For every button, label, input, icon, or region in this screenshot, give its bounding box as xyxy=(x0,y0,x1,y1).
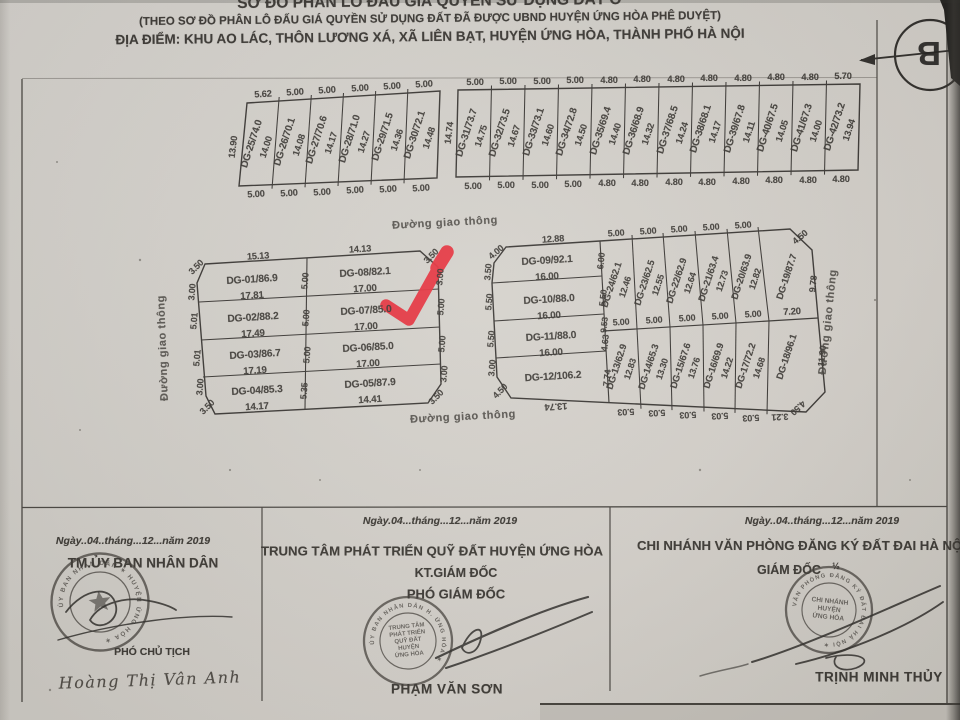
dim-label: 4.80 xyxy=(667,74,684,84)
dim-label: 5.00 xyxy=(313,186,331,197)
dim-label: 4.80 xyxy=(600,75,617,85)
dim-label: 5.00 xyxy=(301,346,312,364)
signature-role-1: PHÓ CHỦ TỊCH xyxy=(114,646,190,658)
dim-label: 6.00 xyxy=(595,252,607,270)
dim-label: 12.88 xyxy=(542,233,565,245)
signature-date-3: Ngày..04..tháng...12...năm 2019 xyxy=(745,515,899,527)
svg-text:CHI NHÁNH: CHI NHÁNH xyxy=(811,594,849,607)
signature-name-2: PHẠM VĂN SƠN xyxy=(391,682,503,697)
dim-label: 9.53 xyxy=(598,317,610,334)
dim-label: 5.00 xyxy=(567,75,584,85)
dim-label: 5.00 xyxy=(711,310,728,321)
photo-left-edge xyxy=(0,0,10,720)
dim-label: 5.00 xyxy=(412,182,430,193)
dim-label: 4.63 xyxy=(599,334,611,352)
dim-label: 14.41 xyxy=(358,394,382,406)
dim-label: 5.03 xyxy=(617,407,634,418)
dim-label: 3.00 xyxy=(194,378,205,396)
compass-north-label: B xyxy=(917,34,941,72)
signature-role-mark-3: ½ xyxy=(832,561,840,571)
dim-label: 7.74 xyxy=(601,369,613,387)
photo-noise-speckles xyxy=(49,161,911,691)
dim-label: 5.00 xyxy=(299,272,310,290)
dim-label: 17.19 xyxy=(243,365,267,377)
dim-label: 5.00 xyxy=(435,298,446,316)
photo-top-edge xyxy=(0,0,960,3)
dim-label: 4.80 xyxy=(801,72,818,82)
signature-date-1: Ngày..04..tháng...12...năm 2019 xyxy=(56,535,210,547)
dim-label: 3.50 xyxy=(482,263,493,281)
dim-label: 5.03 xyxy=(679,409,696,420)
dim-label: 5.50 xyxy=(483,293,494,311)
dim-label: 5.00 xyxy=(734,219,751,230)
signature-role1-2: KT.GIÁM ĐỐC xyxy=(415,566,498,580)
signature-org-2: TRUNG TÂM PHÁT TRIỂN QUỸ ĐẤT HUYỆN ỨNG H… xyxy=(261,544,603,559)
dim-label: 4.80 xyxy=(732,176,749,186)
dim-label: 5.62 xyxy=(254,88,272,99)
dim-label: 17.49 xyxy=(241,328,265,340)
dim-label: 5.00 xyxy=(607,227,624,238)
dim-label: 5.03 xyxy=(742,412,759,423)
adjacent-sheet-edge xyxy=(540,703,960,720)
dim-label: 4.80 xyxy=(665,177,682,187)
dim-label: 4.80 xyxy=(634,74,651,84)
dim-label: 3.00 xyxy=(486,359,497,377)
dim-label: 3.00 xyxy=(434,268,445,286)
dim-label: 5.00 xyxy=(464,181,481,191)
dim-label: 16.00 xyxy=(539,347,563,359)
dim-label: 3.00 xyxy=(438,365,449,383)
dim-label: 5.03 xyxy=(648,408,665,419)
dim-label: 5.01 xyxy=(191,349,202,367)
signature-role2-2: PHÓ GIÁM ĐỐC xyxy=(407,587,505,602)
dim-label: 5.00 xyxy=(247,189,265,200)
dim-label: 5.00 xyxy=(670,223,687,234)
signature-role-3: GIÁM ĐỐC xyxy=(757,563,821,577)
dim-label: 5.00 xyxy=(280,187,298,198)
dim-label: 16.00 xyxy=(537,310,561,322)
signature-name-3: TRỊNH MINH THỦY xyxy=(815,670,943,685)
signature-date-2: Ngày.04...tháng...12...năm 2019 xyxy=(363,515,517,527)
dim-label: 5.00 xyxy=(702,221,719,232)
dim-label: 4.80 xyxy=(701,73,718,83)
dim-label: 5.00 xyxy=(744,308,761,319)
dim-label: 5.00 xyxy=(612,316,629,327)
dim-label: 15.13 xyxy=(247,250,270,261)
dim-label: 5.50 xyxy=(597,289,609,307)
dim-label: 5.01 xyxy=(188,312,199,330)
dim-label: 5.35 xyxy=(298,382,309,400)
dim-label: 4.80 xyxy=(799,175,816,185)
dim-label: 5.00 xyxy=(498,180,515,190)
official-stamp-2: TRUNG TÂM PHÁT TRIỂN QUỸ ĐẤT HUYỆN ỨNG H… xyxy=(360,593,457,690)
dim-label: 5.00 xyxy=(531,179,548,189)
dim-label: 5.00 xyxy=(383,80,401,91)
dim-label: 4.80 xyxy=(632,178,649,188)
dim-label: 5.00 xyxy=(286,86,304,97)
dim-label: 5.00 xyxy=(500,76,517,86)
dim-label: 17.00 xyxy=(353,283,377,295)
dim-label: 5.00 xyxy=(300,309,311,327)
dim-label: 5.03 xyxy=(711,411,728,422)
dim-label: 5.00 xyxy=(678,312,695,323)
dim-label: 5.00 xyxy=(645,314,662,325)
plot-depth-label: 9.78 xyxy=(807,275,819,293)
dim-label: 5.70 xyxy=(835,71,852,81)
dim-label: 3.00 xyxy=(186,283,197,301)
dim-label: 4.80 xyxy=(833,174,850,184)
dim-label: 13.74 xyxy=(544,400,567,412)
dim-label: 16.00 xyxy=(535,271,559,283)
dim-label: 5.00 xyxy=(466,77,483,87)
dim-label: 3.21 xyxy=(771,412,788,423)
dim-label: 5.00 xyxy=(351,82,369,93)
dim-label: 4.80 xyxy=(734,73,751,83)
dim-label: 5.00 xyxy=(533,76,550,86)
dim-label: 7.20 xyxy=(783,306,801,318)
dim-label: 5.00 xyxy=(565,179,582,189)
dim-label: 5.00 xyxy=(346,185,364,196)
compass xyxy=(859,20,960,90)
dim-label: 14.17 xyxy=(245,401,269,413)
scanned-land-plot-map: SƠ ĐỒ PHÂN LÔ ĐẤU GIÁ QUYỀN SỬ DỤNG ĐẤT … xyxy=(0,0,960,720)
dim-label: 17.00 xyxy=(354,321,378,333)
dim-label: 5.00 xyxy=(436,335,447,353)
dim-label: 5.00 xyxy=(415,78,433,89)
dim-label: 5.00 xyxy=(379,183,397,194)
signature-org-3: CHI NHÁNH VĂN PHÒNG ĐĂNG KÝ ĐẤT ĐAI HÀ N… xyxy=(637,538,960,553)
dim-label: 4.80 xyxy=(598,178,615,188)
dim-label: 4.80 xyxy=(768,72,785,82)
photo-right-edge xyxy=(946,0,960,720)
dim-label: 4.80 xyxy=(699,176,716,186)
dim-label: 17.81 xyxy=(240,290,264,302)
dim-label: 5.00 xyxy=(318,84,336,95)
dim-label: 4.80 xyxy=(766,175,783,185)
dim-label: 17.00 xyxy=(356,358,380,370)
dim-label: 5.50 xyxy=(485,330,496,348)
dim-label: 5.00 xyxy=(639,225,656,236)
dim-label: 14.13 xyxy=(349,243,372,254)
signature-title-1: TM.ỦY BAN NHÂN DÂN xyxy=(68,556,219,571)
